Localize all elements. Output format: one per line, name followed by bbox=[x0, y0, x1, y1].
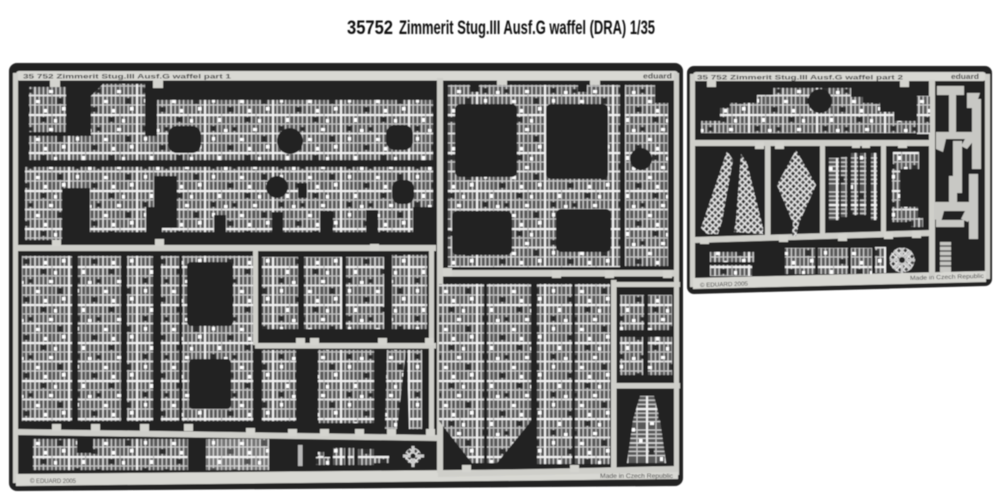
svg-text:35 752 Zimmerit Stug.III Ausf: 35 752 Zimmerit Stug.III Ausf.G waffel p… bbox=[23, 74, 232, 81]
svg-text:eduard: eduard bbox=[643, 72, 672, 81]
svg-text:© EDUARD 2005: © EDUARD 2005 bbox=[30, 478, 77, 485]
svg-text:Zimmerit Stug.III Ausf.G waffe: Zimmerit Stug.III Ausf.G waffel (DRA) 1/… bbox=[399, 18, 655, 39]
svg-text:Made in Czech Republic: Made in Czech Republic bbox=[600, 474, 673, 480]
svg-text:© EDUARD 2005: © EDUARD 2005 bbox=[700, 281, 749, 289]
svg-text:35 752 Zimmerit Stug.III Ausf: 35 752 Zimmerit Stug.III Ausf.G waffel p… bbox=[697, 75, 904, 82]
svg-text:eduard: eduard bbox=[951, 72, 979, 81]
svg-text:35752: 35752 bbox=[347, 18, 393, 39]
